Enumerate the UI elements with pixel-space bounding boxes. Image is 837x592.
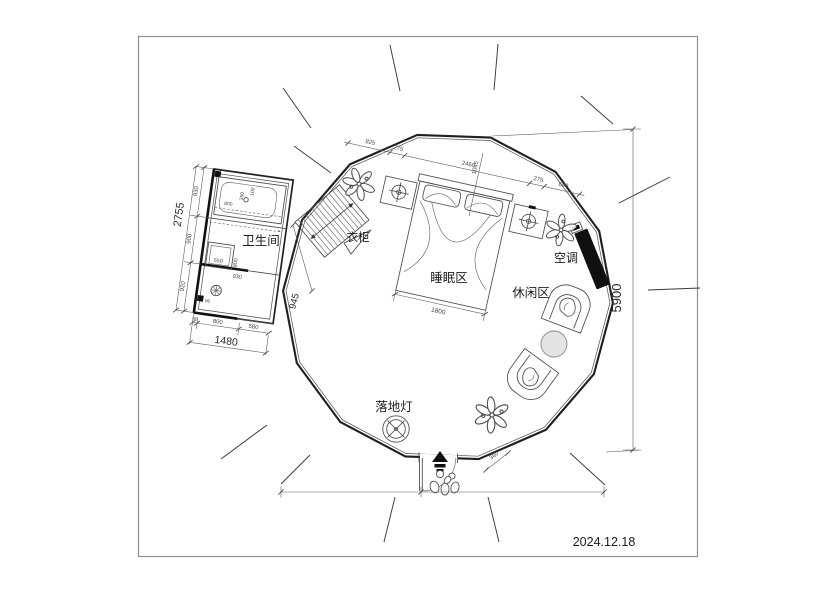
dim-2755: 2755 (172, 202, 187, 228)
nightstand-right (509, 202, 549, 239)
downlight-icon (517, 209, 541, 233)
bath-dim-800: 800 (224, 201, 233, 208)
bath-dim-900: 900 (233, 258, 240, 268)
dim-900: 900 (186, 233, 193, 244)
dim-920: 920 (180, 280, 187, 291)
leisure-area-label: 休闲区 (512, 286, 550, 300)
dim-275: 275 (393, 145, 405, 153)
wall-post-marker (214, 171, 221, 178)
dim-1800: 1800 (430, 307, 446, 317)
sleeping-area-label: 睡眠区 (430, 271, 468, 285)
dim-945: 945 (287, 292, 302, 310)
downlight-icon (387, 180, 411, 204)
floor-lamp-label: 落地灯 (375, 400, 413, 414)
plant-icon (337, 162, 382, 207)
dim-825: 825 (365, 139, 377, 147)
pillow (422, 184, 462, 208)
armchair (501, 348, 559, 406)
dim-275-right: 275 (533, 176, 545, 184)
headboard (418, 174, 513, 202)
bath-dim-350: 350 (239, 191, 246, 200)
dim-930: 930 (193, 185, 200, 196)
entry-width-dimension: 360 (483, 450, 510, 472)
entry-arrow-icon (432, 451, 448, 472)
wall-post-marker (197, 295, 204, 302)
dim-800: 800 (212, 319, 223, 326)
bed: 1800 (390, 174, 514, 326)
floor-plan-drawing: 800 350 100 550 900 930 90 930 900 920 2… (0, 0, 837, 592)
person-figure (429, 470, 461, 495)
bath-dim-930: 930 (232, 274, 242, 281)
air-conditioner-label: 空调 (554, 251, 578, 265)
bathroom-label: 卫生间 (242, 234, 280, 248)
bath-dim-100: 100 (250, 187, 257, 196)
floor-plan-page: 800 350 100 550 900 930 90 930 900 920 2… (0, 0, 837, 592)
dim-580: 580 (248, 324, 259, 331)
floor-lamp-icon (383, 416, 409, 442)
nightstand-left (380, 176, 417, 209)
wardrobe-label: 衣柜 (347, 230, 370, 244)
wall-vent-marker (528, 205, 535, 209)
plant-icon (466, 389, 517, 440)
date-stamp: 2024.12.18 (573, 535, 636, 549)
dim-690: 690 (558, 182, 570, 190)
pillow (464, 194, 504, 218)
bathroom-block: 800 350 100 550 900 930 90 930 900 920 2… (156, 162, 294, 356)
bath-dim-550: 550 (213, 258, 223, 265)
bed-outline (396, 181, 510, 310)
round-table (541, 331, 567, 357)
dim-1480: 1480 (214, 334, 239, 349)
door-leaf (420, 458, 423, 491)
dim-5900: 5900 (609, 284, 624, 313)
